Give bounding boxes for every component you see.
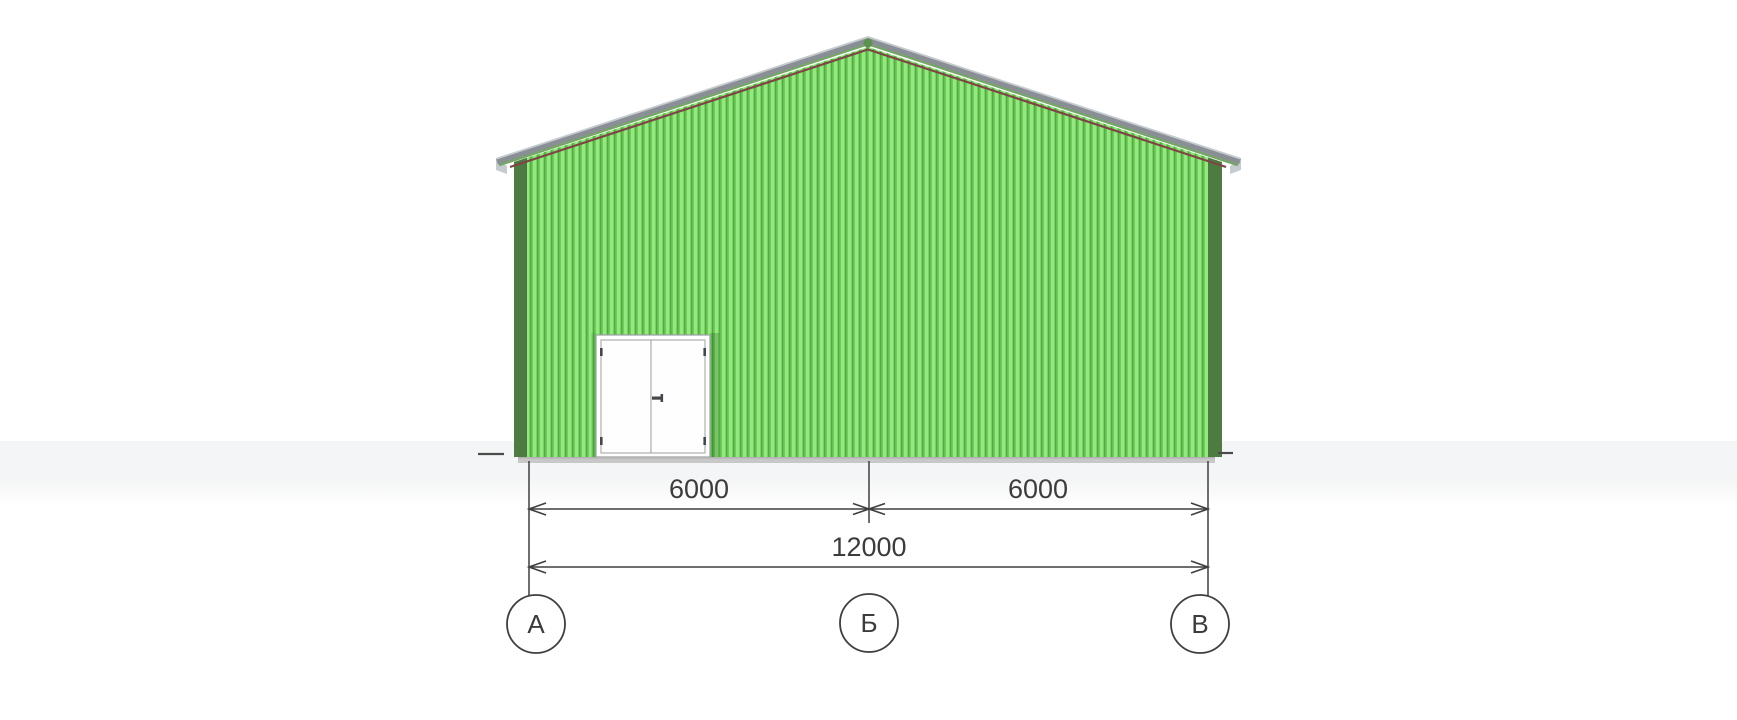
door-left-leaf bbox=[601, 340, 651, 453]
left-corner-trim bbox=[514, 140, 527, 460]
dim-text-bay-right: 6000 bbox=[1008, 474, 1068, 504]
dim-text-bay-left: 6000 bbox=[669, 474, 729, 504]
elevation-drawing-canvas: { "elevation": { "axis_labels": { "a": "… bbox=[0, 0, 1737, 720]
hinge-icon bbox=[600, 437, 603, 445]
axis-bubble-b: Б bbox=[840, 594, 898, 652]
gable-elevation-view: 6000 6000 12000 А Б В bbox=[0, 0, 1737, 720]
ridge-cap bbox=[863, 38, 872, 47]
hinge-icon bbox=[703, 437, 706, 445]
door-reveal-shadow-left bbox=[591, 333, 596, 457]
axis-label-b: Б bbox=[860, 608, 877, 638]
entry-door bbox=[596, 335, 710, 457]
door-reveal-shadow-right bbox=[710, 333, 719, 457]
axis-label-v: В bbox=[1191, 609, 1208, 639]
axis-label-a: А bbox=[527, 609, 545, 639]
plinth-strip-edge bbox=[518, 457, 1215, 459]
dim-text-total: 12000 bbox=[831, 532, 906, 562]
hinge-icon bbox=[703, 348, 706, 356]
right-corner-trim bbox=[1208, 140, 1222, 460]
axis-bubble-a: А bbox=[507, 595, 565, 653]
axis-bubble-v: В bbox=[1171, 595, 1229, 653]
hinge-icon bbox=[600, 348, 603, 356]
